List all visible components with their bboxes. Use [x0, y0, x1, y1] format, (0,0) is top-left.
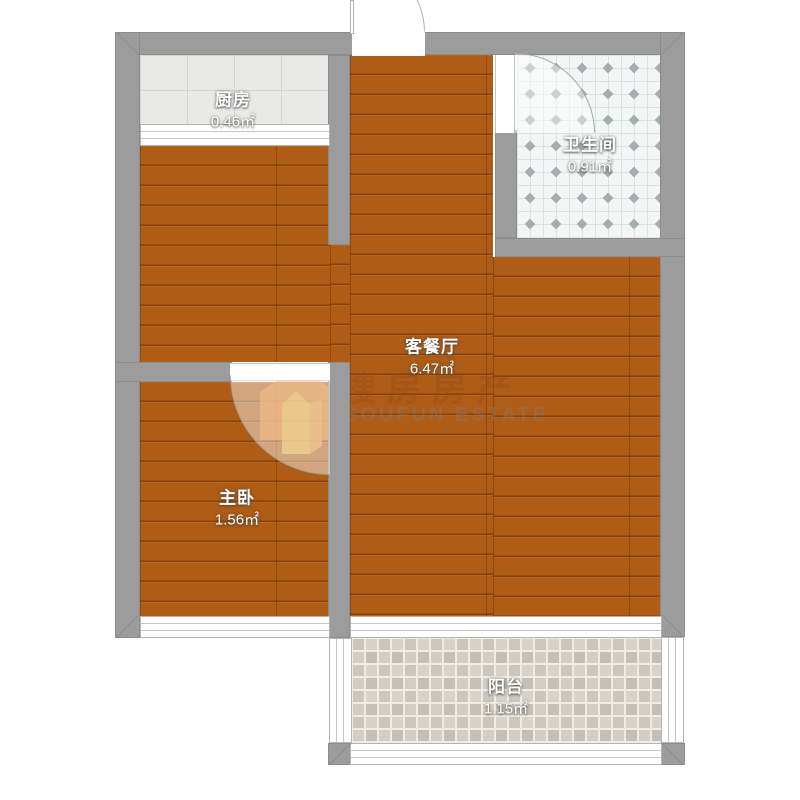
wall-corner-bevel [115, 615, 140, 638]
watermark-text-en: SOUFUN ESTATE [344, 404, 549, 427]
bedroom-window [140, 616, 330, 638]
room-label-kitchen: 厨房 0.46㎡ [211, 89, 255, 132]
entrance-door-opening [352, 32, 425, 56]
room-area: 1.15㎡ [484, 700, 528, 718]
wall-right [660, 32, 685, 637]
wall-bathroom-left [495, 130, 517, 238]
living-floor-left [140, 146, 330, 362]
room-label-balcony: 阳台 1.15㎡ [484, 676, 528, 719]
wall-kitchen-divider [328, 55, 350, 245]
room-area: 0.91㎡ [563, 158, 617, 176]
balcony-window-left [329, 638, 352, 743]
wall-corner-bevel [660, 614, 685, 637]
room-area: 1.56㎡ [215, 511, 259, 529]
wall-corner-bevel [115, 32, 140, 55]
wall-corner-bevel [660, 32, 685, 55]
room-area: 0.46㎡ [211, 113, 255, 131]
wall-corner-bevel [328, 743, 352, 765]
wall-left [115, 32, 140, 638]
room-area: 6.47㎡ [405, 360, 459, 378]
room-name: 厨房 [211, 89, 255, 114]
room-label-living-dining: 客餐厅 6.47㎡ [405, 336, 459, 379]
bathroom-door-leaf [495, 55, 515, 133]
room-label-bathroom: 卫生间 0.91㎡ [563, 134, 617, 177]
room-name: 阳台 [484, 676, 528, 701]
wall-bedroom-right [328, 362, 350, 638]
room-name: 卫生间 [563, 134, 617, 159]
entrance-door-arc [352, 0, 425, 32]
living-floor-passage [330, 245, 350, 362]
room-label-master-bedroom: 主卧 1.56㎡ [215, 487, 259, 530]
balcony-window-bottom [350, 743, 662, 765]
room-name: 客餐厅 [405, 336, 459, 361]
wall-corner-bevel [660, 743, 685, 765]
living-floor-right [493, 257, 662, 616]
floorplan-canvas: 搜房房产 SOUFUN ESTATE 厨房 0.46㎡ 卫生间 0.91㎡ 客餐… [0, 0, 800, 800]
balcony-sliding-door [350, 616, 662, 638]
wall-bedroom-top [115, 362, 232, 382]
balcony-window-right [661, 637, 684, 743]
wall-bathroom-bottom [495, 238, 685, 257]
room-name: 主卧 [215, 487, 259, 512]
